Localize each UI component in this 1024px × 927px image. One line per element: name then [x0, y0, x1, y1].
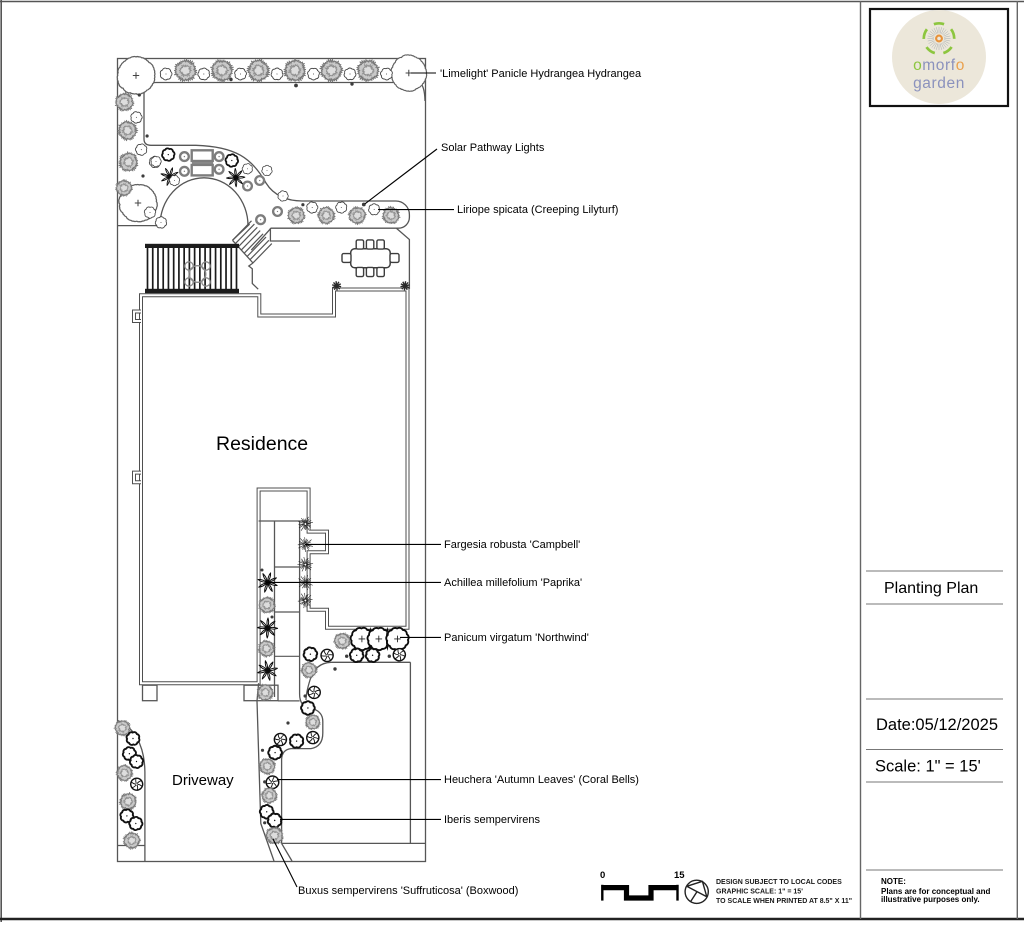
svg-text:illustrative purposes only.: illustrative purposes only. [881, 895, 980, 904]
svg-text:Heuchera 'Autumn Leaves' (Cora: Heuchera 'Autumn Leaves' (Coral Bells) [444, 774, 639, 786]
svg-text:15: 15 [674, 870, 685, 881]
svg-text:0: 0 [600, 870, 605, 881]
svg-text:Date:05/12/2025: Date:05/12/2025 [876, 716, 998, 734]
svg-text:TO SCALE WHEN PRINTED AT 8.5": TO SCALE WHEN PRINTED AT 8.5" X 11" [716, 898, 852, 905]
svg-text:Fargesia robusta 'Campbell': Fargesia robusta 'Campbell' [444, 539, 580, 551]
svg-text:NOTE:: NOTE: [881, 877, 906, 886]
svg-text:Buxus sempervirens 'Suffrutico: Buxus sempervirens 'Suffruticosa' (Boxwo… [298, 885, 518, 897]
svg-text:'Limelight' Panicle Hydrangea: 'Limelight' Panicle Hydrangea Hydrangea [440, 68, 642, 80]
svg-text:Planting Plan: Planting Plan [884, 580, 978, 597]
svg-text:Achillea millefolium 'Paprika': Achillea millefolium 'Paprika' [444, 577, 582, 589]
svg-text:Scale: 1" = 15': Scale: 1" = 15' [875, 758, 981, 776]
svg-text:Iberis sempervirens: Iberis sempervirens [444, 814, 540, 826]
svg-text:omorfo: omorfo [913, 57, 965, 74]
svg-text:GRAPHIC SCALE: 1" = 15': GRAPHIC SCALE: 1" = 15' [716, 889, 803, 896]
svg-text:Panicum virgatum 'Northwind': Panicum virgatum 'Northwind' [444, 632, 589, 644]
svg-text:Liriope spicata (Creeping Lily: Liriope spicata (Creeping Lilyturf) [457, 204, 618, 216]
svg-text:DESIGN SUBJECT TO LOCAL CODES: DESIGN SUBJECT TO LOCAL CODES [716, 879, 842, 886]
svg-text:garden: garden [913, 75, 965, 92]
svg-text:Solar Pathway Lights: Solar Pathway Lights [441, 142, 545, 154]
svg-text:Residence: Residence [216, 433, 308, 455]
svg-text:Driveway: Driveway [172, 772, 234, 789]
